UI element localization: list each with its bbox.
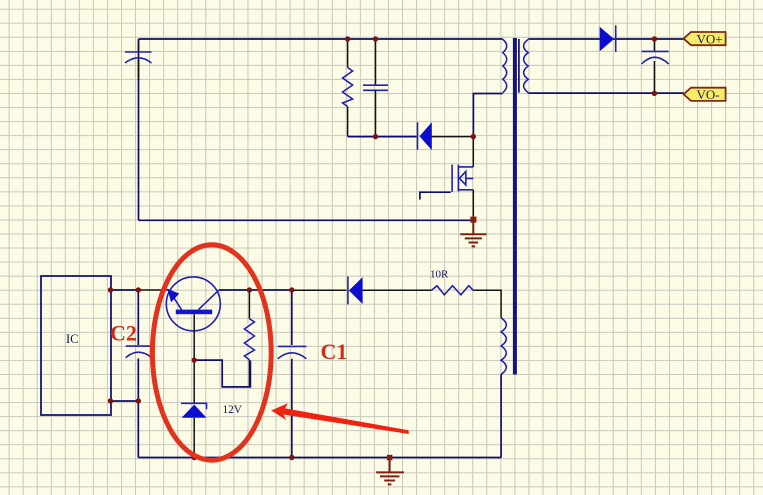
svg-text:VO+: VO+ <box>697 31 723 46</box>
svg-text:10R: 10R <box>430 269 449 281</box>
svg-text:12V: 12V <box>223 404 243 416</box>
svg-text:IC: IC <box>66 332 79 346</box>
svg-text:VO-: VO- <box>697 87 720 102</box>
svg-text:C1: C1 <box>321 339 348 364</box>
svg-text:C2: C2 <box>110 321 137 346</box>
